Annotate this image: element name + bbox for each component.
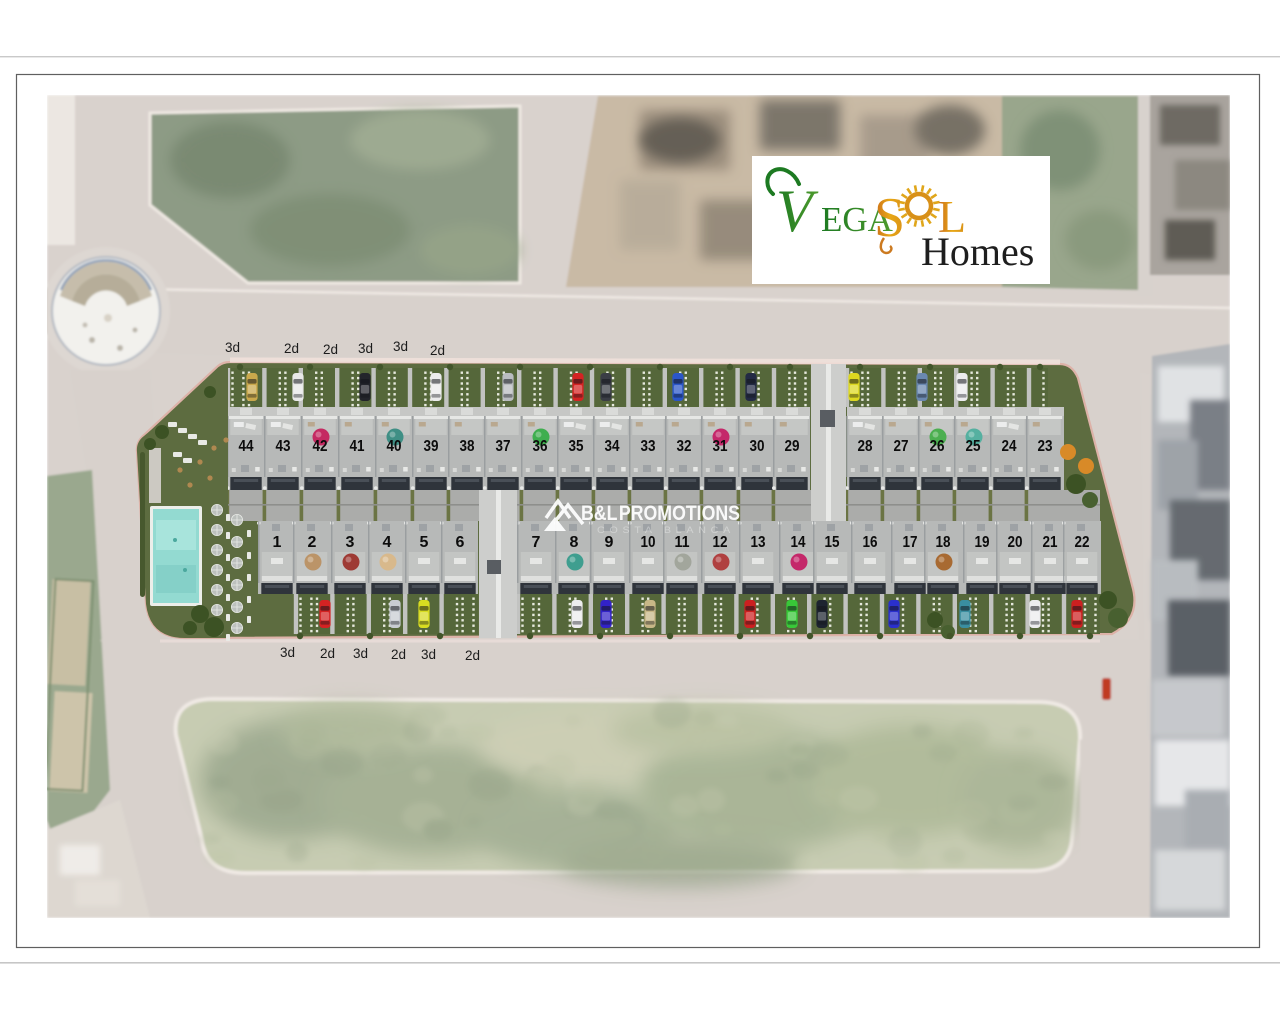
svg-text:13: 13 [751,534,766,551]
svg-text:B&L PROMOTIONS: B&L PROMOTIONS [581,501,740,525]
svg-text:2d: 2d [465,648,480,663]
svg-text:43: 43 [276,438,291,455]
svg-text:3: 3 [346,534,355,551]
svg-text:38: 38 [460,438,475,455]
svg-text:29: 29 [785,438,800,455]
svg-text:27: 27 [894,438,909,455]
svg-text:11: 11 [675,534,690,551]
svg-text:36: 36 [533,438,548,455]
svg-text:35: 35 [569,438,584,455]
svg-text:25: 25 [966,438,981,455]
svg-text:22: 22 [1075,534,1090,551]
svg-text:1: 1 [273,534,282,551]
svg-text:3d: 3d [421,647,436,662]
svg-text:33: 33 [641,438,656,455]
svg-text:COSTA BLANCA: COSTA BLANCA [597,525,735,535]
svg-text:10: 10 [641,534,656,551]
svg-text:41: 41 [350,438,365,455]
svg-text:39: 39 [424,438,439,455]
svg-text:28: 28 [858,438,873,455]
svg-text:31: 31 [713,438,728,455]
svg-text:20: 20 [1008,534,1023,551]
svg-text:V: V [776,178,819,244]
svg-text:7: 7 [532,534,541,551]
svg-text:3d: 3d [358,341,373,356]
svg-text:3d: 3d [225,340,240,355]
svg-text:16: 16 [863,534,878,551]
svg-text:3d: 3d [353,646,368,661]
svg-text:18: 18 [936,534,951,551]
svg-text:12: 12 [713,534,728,551]
svg-text:2: 2 [308,534,317,551]
svg-text:2d: 2d [320,646,335,661]
svg-text:24: 24 [1002,438,1017,455]
svg-text:Homes: Homes [921,229,1034,274]
svg-text:6: 6 [456,534,465,551]
svg-text:9: 9 [605,534,614,551]
svg-text:15: 15 [825,534,840,551]
svg-text:26: 26 [930,438,945,455]
svg-text:8: 8 [570,534,579,551]
svg-text:2d: 2d [323,342,338,357]
svg-text:30: 30 [750,438,765,455]
svg-text:32: 32 [677,438,692,455]
svg-text:2d: 2d [430,343,445,358]
svg-text:40: 40 [387,438,402,455]
svg-text:S: S [874,187,905,249]
svg-text:34: 34 [605,438,620,455]
svg-text:4: 4 [383,534,392,551]
svg-text:23: 23 [1038,438,1053,455]
svg-text:2d: 2d [284,341,299,356]
svg-text:5: 5 [420,534,429,551]
svg-text:19: 19 [975,534,990,551]
svg-text:3d: 3d [393,339,408,354]
svg-text:42: 42 [313,438,328,455]
svg-text:3d: 3d [280,645,295,660]
svg-text:14: 14 [791,534,806,551]
svg-text:37: 37 [496,438,511,455]
svg-text:21: 21 [1043,534,1058,551]
svg-text:2d: 2d [391,647,406,662]
svg-text:17: 17 [903,534,918,551]
svg-text:44: 44 [239,438,254,455]
